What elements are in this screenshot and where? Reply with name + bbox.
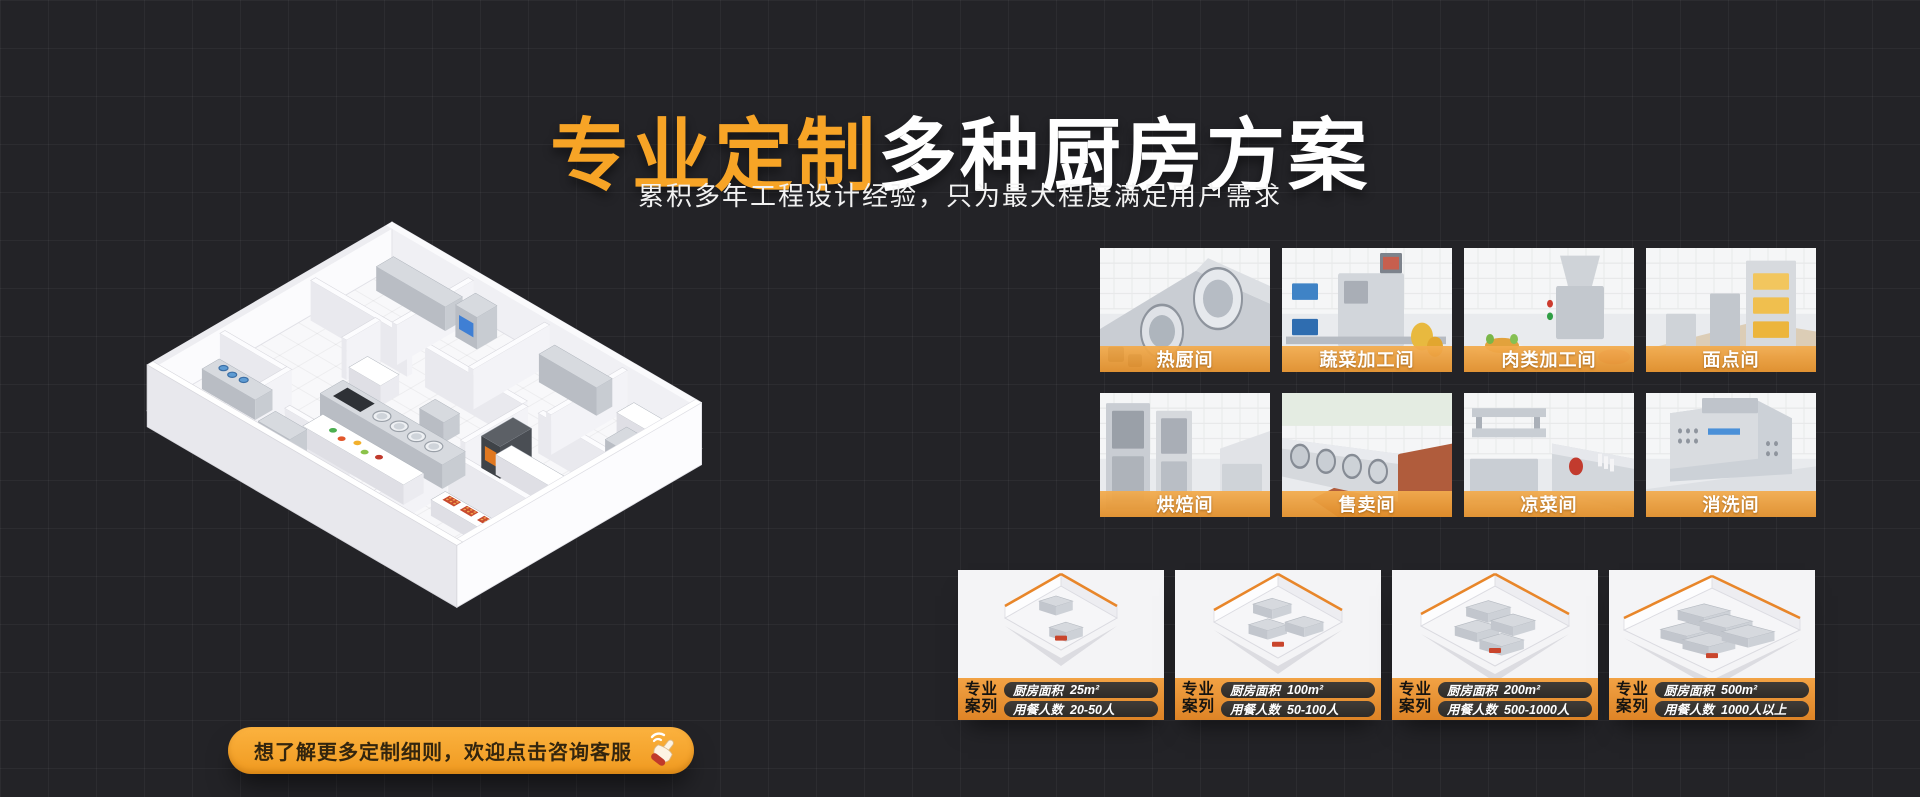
room-tile-6[interactable]: 售卖间 — [1282, 393, 1452, 517]
case-area-pill: 厨房面积500m² — [1655, 682, 1809, 698]
room-type-grid: 热厨间 蔬菜加工间 肉类加工间 面点间 烘焙间 售卖间 凉菜间 消洗间 — [1100, 248, 1816, 517]
cta-label: 想了解更多定制细则，欢迎点击咨询客服 — [254, 736, 632, 765]
case-kitchen-photo — [958, 570, 1164, 678]
room-label: 面点间 — [1646, 346, 1816, 372]
case-kitchen-photo — [1175, 570, 1381, 678]
case-area-pill: 厨房面积25m² — [1004, 682, 1158, 698]
case-diners-pill: 用餐人数50-100人 — [1221, 701, 1375, 717]
case-kitchen-photo — [1392, 570, 1598, 678]
floorplan-svg — [92, 178, 732, 653]
case-tile-4[interactable]: 专业案列 厨房面积500m² 用餐人数1000人以上 — [1609, 570, 1815, 720]
case-row: 专业案列 厨房面积25m² 用餐人数20-50人 专业案列 厨房面积100m² … — [958, 570, 1815, 720]
room-label: 售卖间 — [1282, 491, 1452, 517]
room-tile-1[interactable]: 热厨间 — [1100, 248, 1270, 372]
case-tile-2[interactable]: 专业案列 厨房面积100m² 用餐人数50-100人 — [1175, 570, 1381, 720]
room-tile-7[interactable]: 凉菜间 — [1464, 393, 1634, 517]
case-label-bar: 专业案列 厨房面积100m² 用餐人数50-100人 — [1175, 678, 1381, 720]
case-kitchen-photo — [1609, 570, 1815, 678]
room-label: 蔬菜加工间 — [1282, 346, 1452, 372]
case-badge: 专业案列 — [965, 682, 998, 715]
case-label-bar: 专业案列 厨房面积200m² 用餐人数500-1000人 — [1392, 678, 1598, 720]
case-tile-3[interactable]: 专业案列 厨房面积200m² 用餐人数500-1000人 — [1392, 570, 1598, 720]
case-diners-pill: 用餐人数500-1000人 — [1438, 701, 1592, 717]
case-label-bar: 专业案列 厨房面积500m² 用餐人数1000人以上 — [1609, 678, 1815, 720]
room-label: 烘焙间 — [1100, 491, 1270, 517]
room-tile-4[interactable]: 面点间 — [1646, 248, 1816, 372]
case-badge: 专业案列 — [1616, 682, 1649, 715]
room-label: 热厨间 — [1100, 346, 1270, 372]
click-hand-icon — [640, 727, 682, 769]
case-area-pill: 厨房面积200m² — [1438, 682, 1592, 698]
case-tile-1[interactable]: 专业案列 厨房面积25m² 用餐人数20-50人 — [958, 570, 1164, 720]
case-label-bar: 专业案列 厨房面积25m² 用餐人数20-50人 — [958, 678, 1164, 720]
room-tile-3[interactable]: 肉类加工间 — [1464, 248, 1634, 372]
case-badge: 专业案列 — [1182, 682, 1215, 715]
hero-banner: 专业定制多种厨房方案 累积多年工程设计经验，只为最大程度满足用户需求 热厨间 蔬… — [0, 0, 1920, 797]
case-badge: 专业案列 — [1399, 682, 1432, 715]
room-label: 凉菜间 — [1464, 491, 1634, 517]
kitchen-floorplan-illustration — [92, 178, 732, 653]
room-tile-5[interactable]: 烘焙间 — [1100, 393, 1270, 517]
room-tile-8[interactable]: 消洗间 — [1646, 393, 1816, 517]
case-area-pill: 厨房面积100m² — [1221, 682, 1375, 698]
room-tile-2[interactable]: 蔬菜加工间 — [1282, 248, 1452, 372]
contact-service-button[interactable]: 想了解更多定制细则，欢迎点击咨询客服 — [228, 727, 694, 774]
room-label: 肉类加工间 — [1464, 346, 1634, 372]
case-diners-pill: 用餐人数1000人以上 — [1655, 701, 1809, 717]
case-diners-pill: 用餐人数20-50人 — [1004, 701, 1158, 717]
room-label: 消洗间 — [1646, 491, 1816, 517]
